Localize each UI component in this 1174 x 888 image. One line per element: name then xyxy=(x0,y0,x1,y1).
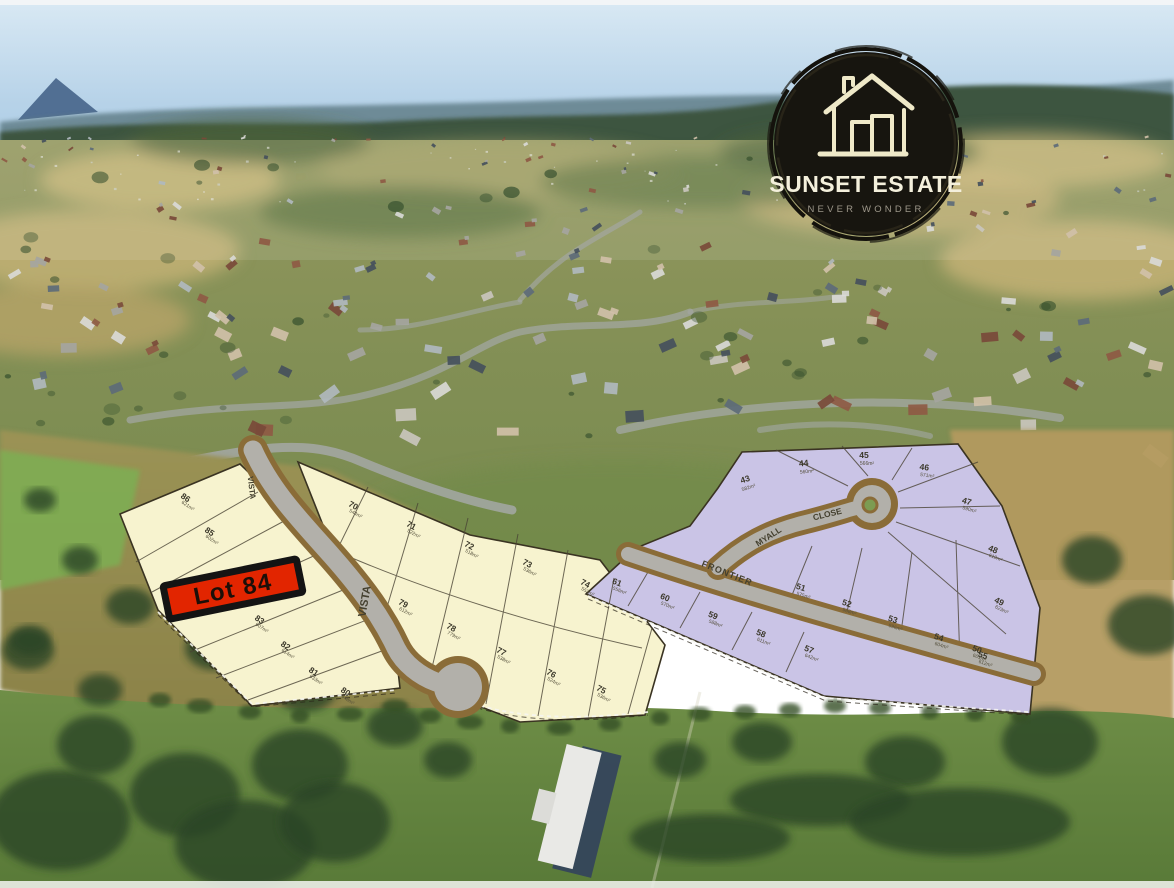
house-roof xyxy=(366,139,370,141)
distant-house-speck xyxy=(530,154,533,156)
logo-tagline: NEVER WONDER xyxy=(807,204,924,215)
distant-house-speck xyxy=(716,164,718,166)
boundary-bush xyxy=(149,693,171,707)
house-roof xyxy=(974,396,992,406)
tree xyxy=(194,160,210,171)
tree xyxy=(782,360,792,367)
tree xyxy=(585,433,592,438)
boundary-bush xyxy=(382,699,408,713)
distant-house-speck xyxy=(35,189,37,191)
foreground-tree xyxy=(732,722,792,762)
distant-house-speck xyxy=(267,147,270,149)
foreground-tree xyxy=(62,546,98,574)
distant-house-speck xyxy=(475,149,476,150)
tree xyxy=(92,172,109,184)
house-roof xyxy=(625,410,644,423)
distant-house-speck xyxy=(91,162,93,164)
foreground-tree xyxy=(654,742,706,778)
house-roof xyxy=(396,319,410,326)
house-roof xyxy=(1040,331,1053,341)
house-roof xyxy=(447,356,460,365)
distant-house-speck xyxy=(667,200,669,201)
tree xyxy=(724,332,738,341)
estate-aerial-photo: VISTA VISTA MYALL CLOSE FRONTIER 86621m²… xyxy=(0,0,1174,888)
distant-house-speck xyxy=(217,184,220,186)
foreground-tree xyxy=(10,625,50,655)
lot-number-label: 44 xyxy=(798,458,809,469)
tree xyxy=(220,405,227,410)
tree xyxy=(280,416,292,424)
distant-house-speck xyxy=(676,150,677,151)
boundary-bush xyxy=(187,699,213,713)
tree xyxy=(104,403,121,415)
distant-house-speck xyxy=(137,155,139,156)
distant-house-speck xyxy=(1137,191,1139,193)
foreground-tree xyxy=(78,674,122,706)
tree xyxy=(48,391,56,397)
tree xyxy=(700,351,714,361)
tree xyxy=(174,391,187,400)
foreground-tree xyxy=(24,488,56,512)
tree xyxy=(717,398,724,403)
house-roof xyxy=(1001,297,1016,305)
tree xyxy=(1143,372,1151,377)
house-roof xyxy=(981,332,999,343)
foreground-tree xyxy=(106,588,154,624)
tree xyxy=(292,317,304,325)
distant-house-speck xyxy=(55,165,58,167)
tree xyxy=(480,193,493,202)
vista-culdesac xyxy=(434,663,482,711)
tree xyxy=(503,187,519,198)
distant-house-speck xyxy=(596,161,598,162)
foreground-tree xyxy=(57,715,133,775)
distant-house-speck xyxy=(178,151,180,153)
foreground-tree xyxy=(424,742,472,778)
house-roof xyxy=(30,261,38,268)
distant-house-speck xyxy=(551,183,553,185)
tree xyxy=(220,342,236,353)
distant-house-speck xyxy=(632,154,635,156)
boundary-bush xyxy=(547,721,573,735)
boundary-bush xyxy=(337,707,363,721)
house-roof xyxy=(947,201,955,206)
logo-title: SUNSET ESTATE xyxy=(769,171,963,197)
distant-house-speck xyxy=(504,161,506,163)
house-roof xyxy=(48,285,60,292)
distant-house-speck xyxy=(430,153,431,154)
tree xyxy=(813,289,822,295)
tree xyxy=(1041,301,1056,311)
foreground-tree xyxy=(280,782,390,862)
tree xyxy=(792,371,805,380)
house-roof xyxy=(497,428,519,436)
distant-house-speck xyxy=(211,198,214,200)
lot-area-label: 566m² xyxy=(860,461,875,467)
boundary-bush xyxy=(921,705,939,719)
tree xyxy=(433,380,440,385)
boundary-bush xyxy=(689,707,711,721)
distant-house-speck xyxy=(138,199,140,201)
tree xyxy=(134,406,143,412)
distant-house-speck xyxy=(41,156,43,158)
distant-house-speck xyxy=(776,199,778,200)
distant-house-speck xyxy=(294,161,296,162)
house-roof xyxy=(866,316,877,325)
distant-house-speck xyxy=(197,199,199,200)
tree xyxy=(160,253,175,263)
distant-house-speck xyxy=(650,180,653,182)
boundary-bush xyxy=(239,705,261,719)
house-roof xyxy=(202,137,207,139)
distant-house-speck xyxy=(279,201,281,202)
tree xyxy=(691,311,707,322)
house-roof xyxy=(61,343,77,353)
house-roof xyxy=(213,170,219,175)
distant-house-speck xyxy=(24,190,25,191)
tree xyxy=(1003,211,1009,215)
foreground-tree xyxy=(850,788,1070,856)
boundary-bush xyxy=(734,705,756,719)
house-roof xyxy=(604,382,618,395)
tree xyxy=(857,337,868,345)
tree xyxy=(196,181,202,185)
house-roof xyxy=(395,408,416,421)
tree xyxy=(1006,308,1011,312)
distant-house-speck xyxy=(684,203,686,205)
distant-house-speck xyxy=(114,188,117,190)
bottom-frame-strip xyxy=(0,881,1174,888)
tree xyxy=(746,157,752,161)
foreground-tree xyxy=(1062,536,1122,584)
house-roof xyxy=(1021,419,1037,430)
distant-house-speck xyxy=(627,163,629,165)
foreground-tree xyxy=(630,814,790,862)
tree xyxy=(544,169,557,178)
tree xyxy=(648,245,661,254)
house-roof xyxy=(908,404,927,415)
tree xyxy=(159,351,168,358)
tree xyxy=(267,163,279,171)
tree xyxy=(50,276,59,283)
tree xyxy=(323,313,329,317)
boundary-bush xyxy=(869,701,891,715)
boundary-bush xyxy=(824,699,846,713)
tree xyxy=(36,420,45,426)
distant-house-speck xyxy=(554,167,555,168)
myall-island xyxy=(863,498,877,512)
tree xyxy=(5,374,11,378)
distant-house-speck xyxy=(1143,189,1145,191)
tree xyxy=(873,285,882,291)
distant-house-speck xyxy=(450,157,452,158)
distant-house-speck xyxy=(486,151,488,153)
distant-house-speck xyxy=(203,191,205,192)
tree xyxy=(569,392,575,396)
distant-house-speck xyxy=(645,171,646,172)
boundary-bush xyxy=(779,703,801,717)
tree xyxy=(102,417,114,426)
lot-number-label: 46 xyxy=(919,461,930,472)
boundary-bush xyxy=(419,709,441,723)
distant-house-speck xyxy=(468,168,470,169)
tree xyxy=(24,232,39,242)
lot-number-label: 45 xyxy=(859,450,869,460)
distant-house-speck xyxy=(246,161,249,163)
distant-house-speck xyxy=(1161,153,1163,155)
boundary-bush xyxy=(651,711,669,725)
top-frame-strip xyxy=(0,0,1174,5)
boundary-bush xyxy=(291,709,309,723)
tree xyxy=(388,201,404,212)
distant-house-speck xyxy=(120,174,121,175)
tree xyxy=(20,246,31,254)
